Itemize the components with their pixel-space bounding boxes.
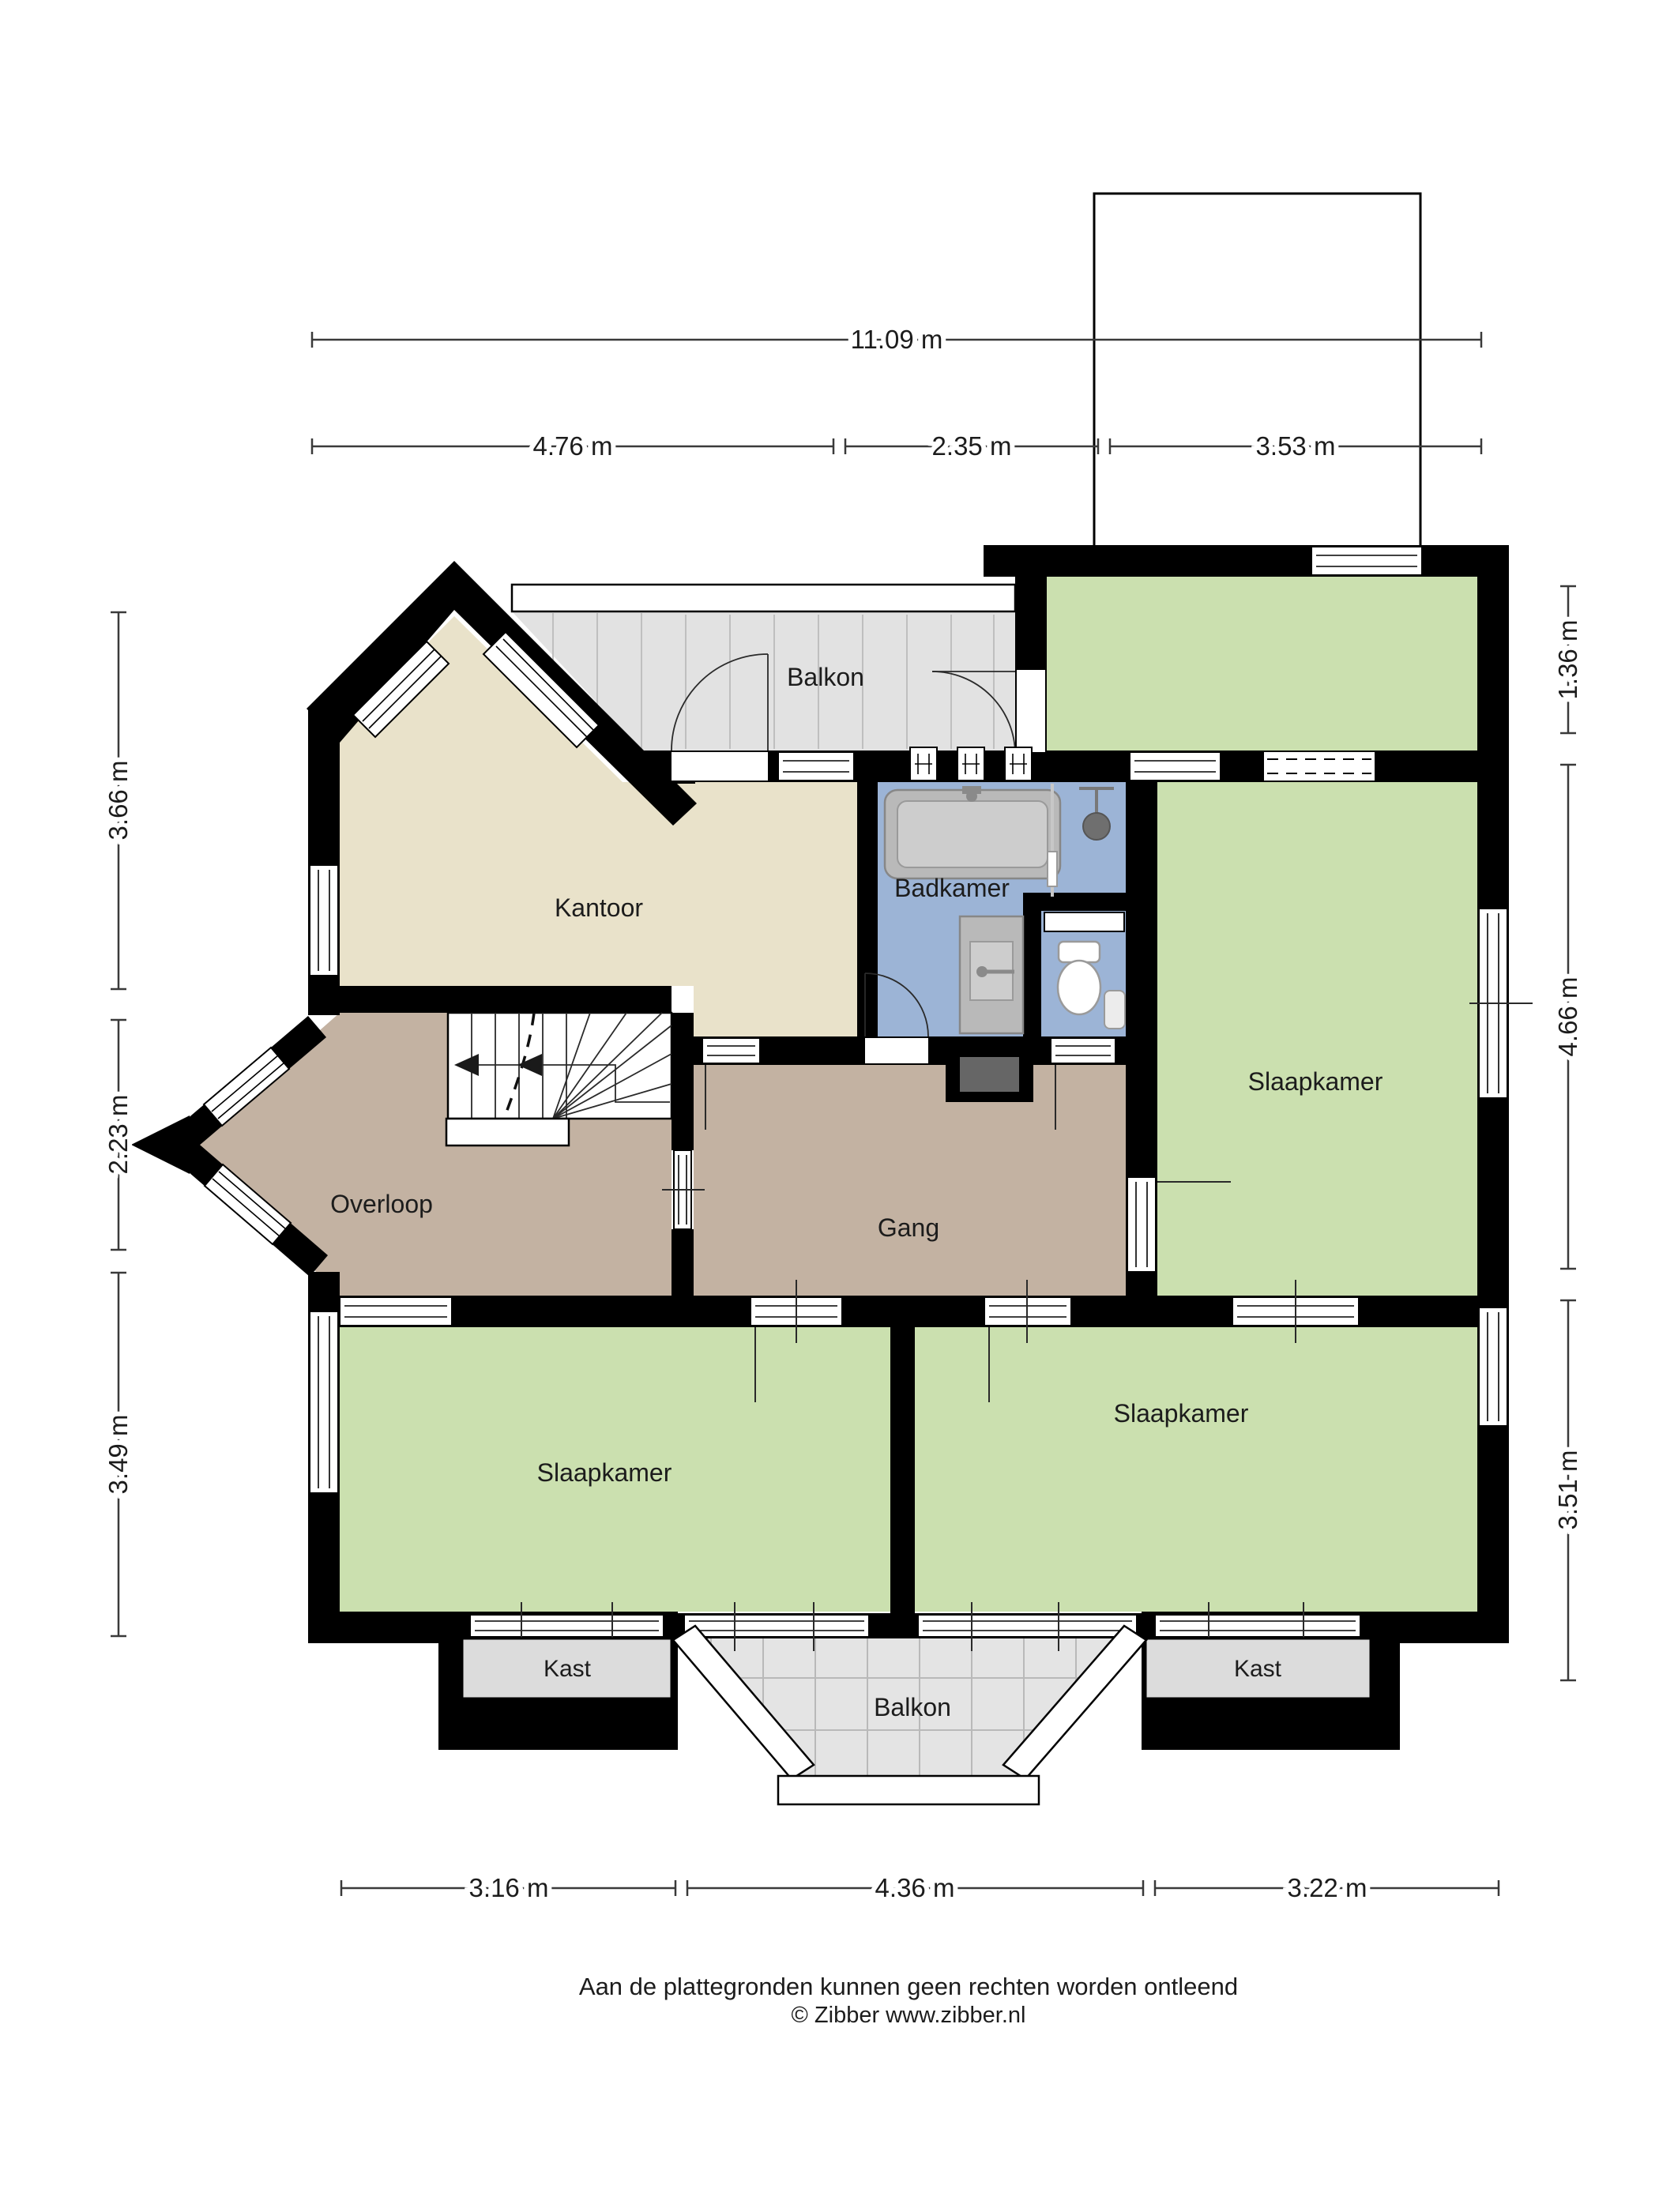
room-slaapkamer-right	[1157, 782, 1477, 1296]
footer-disclaimer: Aan de plattegronden kunnen geen rechten…	[579, 1973, 1238, 2000]
svg-text:2.35 m: 2.35 m	[932, 431, 1012, 461]
top-wall-window	[1311, 547, 1422, 575]
label-gang: Gang	[878, 1213, 939, 1242]
label-kast-right: Kast	[1234, 1656, 1282, 1682]
gangbot-window-left	[340, 1297, 452, 1326]
svg-text:4.36 m: 4.36 m	[875, 1873, 955, 1902]
label-balkon-top: Balkon	[787, 663, 864, 691]
svg-text:11.09 m: 11.09 m	[851, 325, 943, 354]
floorplan-canvas: Balkon Kantoor Badkamer Slaapkamer Overl…	[0, 0, 1659, 2212]
kantoor-top-window	[778, 752, 854, 781]
strip-dashed-opening	[1264, 752, 1375, 781]
svg-text:3.53 m: 3.53 m	[1256, 431, 1336, 461]
dim-top-segments: 4.76 m 2.35 m 3.53 m	[312, 431, 1481, 461]
left-window-kantoor	[310, 865, 338, 976]
footer-copyright: © Zibber www.zibber.nl	[792, 2003, 1026, 2028]
floorplan-page: Balkon Kantoor Badkamer Slaapkamer Overl…	[0, 0, 1659, 2212]
strip-window	[1130, 752, 1221, 781]
shaft	[960, 1057, 1019, 1092]
roof-outline	[1094, 194, 1420, 547]
svg-text:1.36 m: 1.36 m	[1553, 620, 1582, 700]
label-slaapkamer-br: Slaapkamer	[1114, 1399, 1249, 1428]
shower-drain	[1083, 813, 1110, 840]
right-window-bedroom-2	[1479, 1307, 1507, 1426]
room-gang	[694, 1065, 1126, 1296]
badkamer-vent-windows	[910, 747, 1032, 781]
left-window-bedroom	[310, 1311, 338, 1493]
room-slaapkamer-bl	[340, 1302, 890, 1612]
balkon-top-railing	[512, 585, 1015, 611]
svg-text:3.22 m: 3.22 m	[1288, 1873, 1367, 1902]
label-balkon-bottom: Balkon	[874, 1693, 951, 1721]
svg-text:3.16 m: 3.16 m	[469, 1873, 549, 1902]
svg-text:2.23 m: 2.23 m	[103, 1095, 133, 1175]
footer: Aan de plattegronden kunnen geen rechten…	[579, 1973, 1238, 2028]
svg-text:4.76 m: 4.76 m	[533, 431, 613, 461]
bathtub	[885, 786, 1060, 878]
svg-text:3.49 m: 3.49 m	[103, 1415, 133, 1495]
label-slaapkamer-bl: Slaapkamer	[537, 1458, 672, 1487]
label-slaapkamer-right: Slaapkamer	[1248, 1067, 1383, 1096]
svg-text:3.66 m: 3.66 m	[103, 761, 133, 841]
label-kast-left: Kast	[544, 1656, 592, 1682]
toilet-accessory	[1104, 991, 1125, 1029]
dim-right: 1.36 m 4.66 m 3.51 m	[1553, 586, 1582, 1680]
room-strip-bedroom	[1047, 577, 1477, 750]
sink-vanity	[960, 916, 1023, 1033]
svg-text:4.66 m: 4.66 m	[1553, 977, 1582, 1057]
label-overloop: Overloop	[330, 1190, 433, 1218]
svg-text:3.51 m: 3.51 m	[1553, 1450, 1582, 1530]
right-window-bedroom	[1469, 908, 1533, 1098]
label-kantoor: Kantoor	[555, 893, 643, 922]
label-badkamer: Badkamer	[894, 874, 1010, 902]
toilet-shelf	[1044, 912, 1124, 931]
dim-bottom: 3.16 m 4.36 m 3.22 m	[341, 1873, 1499, 1902]
room-slaapkamer-br	[915, 1302, 1477, 1612]
dim-left: 3.66 m 2.23 m 3.49 m	[103, 612, 133, 1636]
stairs-landing	[446, 1119, 569, 1145]
